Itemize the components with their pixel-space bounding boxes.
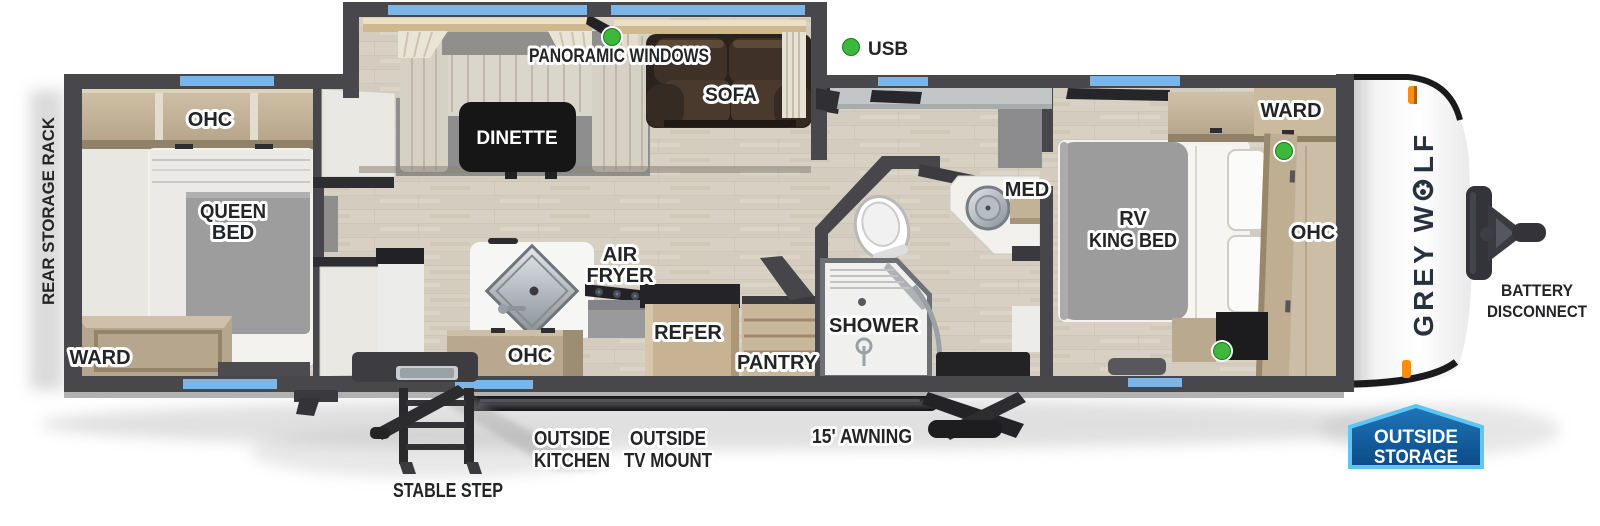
svg-text:DISCONNECT: DISCONNECT — [1487, 302, 1588, 321]
svg-text:GREY: GREY — [1408, 241, 1439, 336]
svg-text:SOFA: SOFA — [705, 85, 757, 106]
svg-text:OUTSIDE: OUTSIDE — [1374, 427, 1458, 448]
svg-text:RV: RV — [1119, 208, 1147, 230]
svg-text:WARD: WARD — [69, 347, 130, 369]
svg-text:OUTSIDE: OUTSIDE — [630, 428, 706, 450]
svg-text:PANORAMIC WINDOWS: PANORAMIC WINDOWS — [529, 46, 709, 67]
svg-text:LF: LF — [1408, 131, 1439, 173]
svg-text:OHC: OHC — [188, 109, 232, 131]
svg-text:FRYER: FRYER — [586, 265, 654, 287]
svg-text:USB: USB — [868, 39, 908, 60]
svg-text:MED: MED — [1005, 179, 1049, 201]
svg-text:AIR: AIR — [603, 244, 638, 266]
svg-text:KING BED: KING BED — [1089, 230, 1177, 252]
svg-text:STABLE STEP: STABLE STEP — [393, 480, 503, 502]
svg-text:PANTRY: PANTRY — [737, 352, 818, 374]
svg-text:QUEEN: QUEEN — [200, 201, 266, 223]
svg-text:REAR STORAGE RACK: REAR STORAGE RACK — [39, 116, 58, 305]
svg-text:KITCHEN: KITCHEN — [534, 450, 610, 472]
svg-text:STORAGE: STORAGE — [1374, 447, 1458, 468]
svg-text:REFER: REFER — [654, 322, 722, 344]
svg-text:15' AWNING: 15' AWNING — [812, 426, 912, 448]
svg-text:DINETTE: DINETTE — [476, 128, 557, 149]
svg-text:BED: BED — [212, 222, 254, 244]
svg-text:OUTSIDE: OUTSIDE — [534, 428, 610, 450]
svg-text:TV MOUNT: TV MOUNT — [624, 450, 712, 472]
svg-text:W: W — [1408, 205, 1439, 232]
svg-text:BATTERY: BATTERY — [1501, 281, 1574, 300]
svg-text:OHC: OHC — [1291, 222, 1335, 244]
svg-text:SHOWER: SHOWER — [829, 315, 920, 337]
svg-text:OHC: OHC — [508, 345, 552, 367]
svg-text:WARD: WARD — [1260, 100, 1321, 122]
